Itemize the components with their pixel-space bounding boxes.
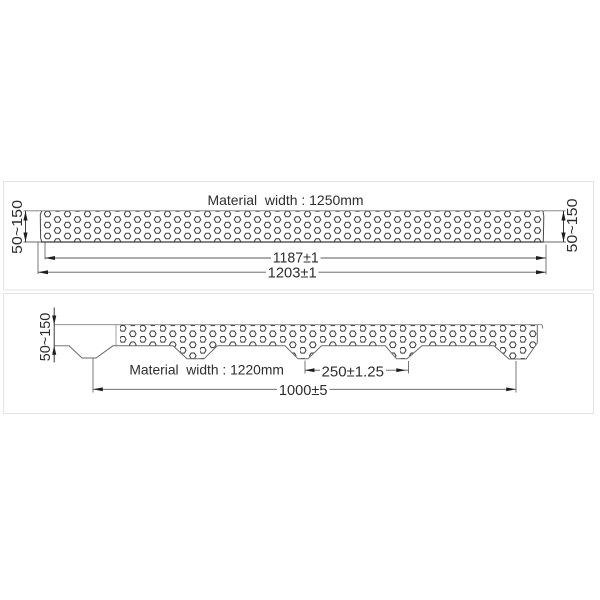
svg-text:Material width : 1220mm: Material width : 1220mm xyxy=(129,362,284,378)
svg-text:1187±1: 1187±1 xyxy=(273,251,319,267)
svg-text:1000±5: 1000±5 xyxy=(279,383,328,399)
svg-text:Material width : 1250mm: Material width : 1250mm xyxy=(208,192,364,208)
svg-text:50~150: 50~150 xyxy=(10,200,26,254)
svg-text:50~150: 50~150 xyxy=(565,199,581,253)
svg-text:250±1.25: 250±1.25 xyxy=(322,364,385,380)
svg-text:50~150: 50~150 xyxy=(38,313,54,362)
svg-text:1203±1: 1203±1 xyxy=(268,265,317,281)
